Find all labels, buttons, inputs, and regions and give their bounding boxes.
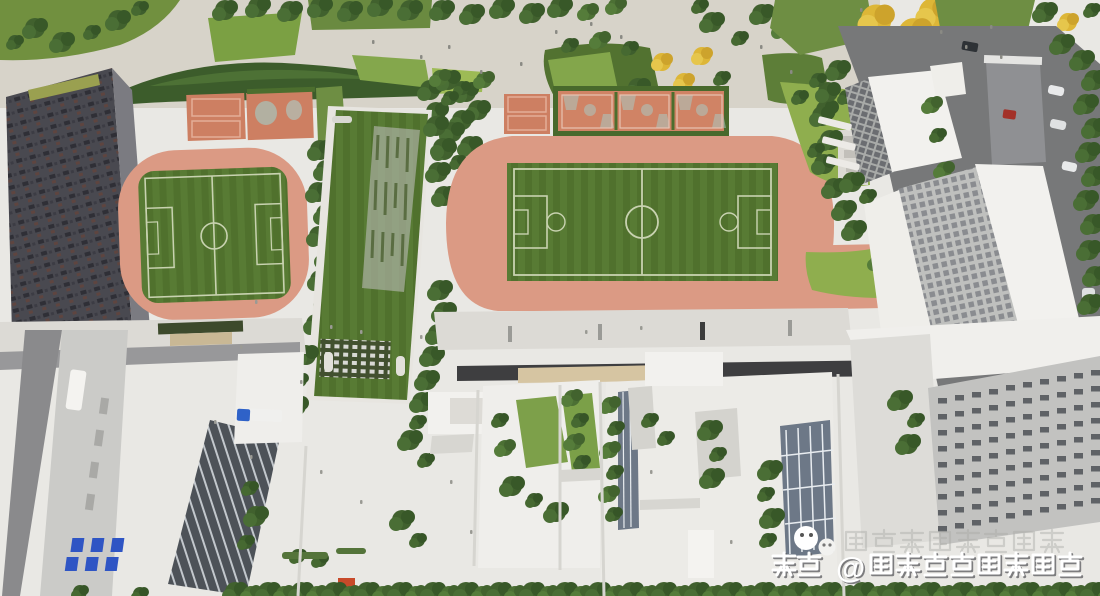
svg-text:@: @: [836, 552, 865, 585]
